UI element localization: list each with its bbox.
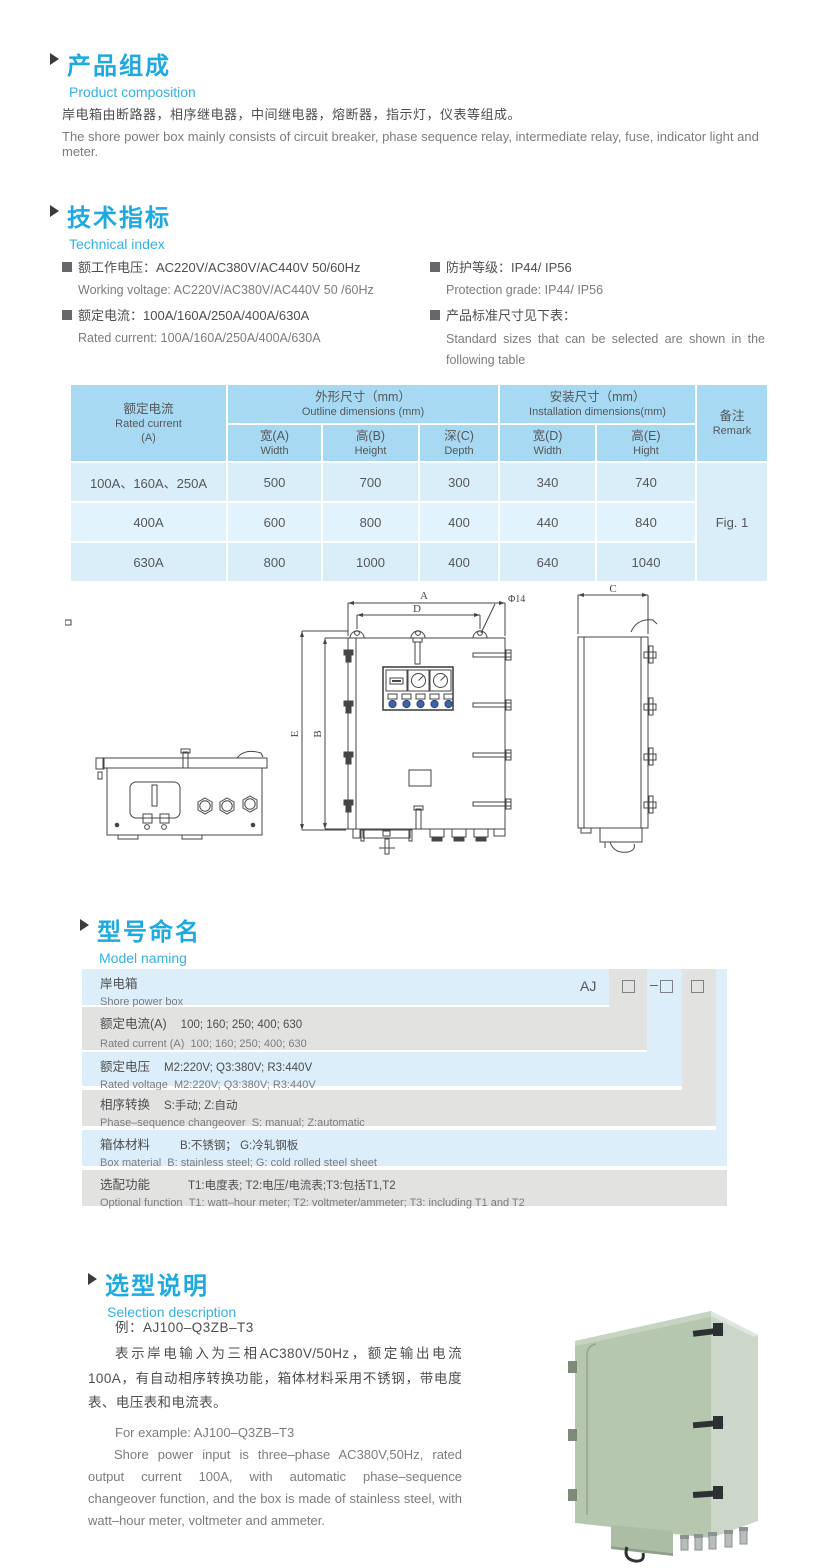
naming-row-rated-voltage: 额定电压M2:220V; Q3:380V; R3:440V Rated volt… bbox=[82, 1052, 682, 1086]
row-label-cn: 箱体材料 bbox=[100, 1134, 150, 1153]
dim-label-b: B bbox=[312, 730, 324, 737]
selection-example-en: For example: AJ100–Q3ZB–T3 bbox=[115, 1425, 462, 1440]
row-value-cn: B:不锈钢； G:冷轧钢板 bbox=[180, 1140, 298, 1152]
selection-body-cn: 表示岸电输入为三相AC380V/50Hz，额定输出电流100A，有自动相序转换功… bbox=[88, 1342, 462, 1416]
dim-label-e: E bbox=[289, 730, 301, 737]
cell-height: 800 bbox=[323, 503, 418, 541]
table-subheader-height-e: 高(E) Hight bbox=[597, 425, 695, 461]
naming-row-rated-current: 额定电流(A)100; 160; 250; 400; 630 Rated cur… bbox=[82, 1007, 647, 1050]
spec-en: Standard sizes that can be selected are … bbox=[446, 329, 765, 371]
spec-en: Rated current: 100A/160A/250A/400A/630A bbox=[78, 331, 422, 345]
subheader-en: Width bbox=[500, 444, 595, 458]
cell-depth: 300 bbox=[420, 463, 498, 501]
header-cn: 备注 bbox=[697, 408, 767, 424]
model-naming-diagram: 岸电箱 Shore power box 额定电流(A)100; 160; 250… bbox=[82, 969, 727, 1206]
section-model-naming-heading: 型号命名 Model naming bbox=[80, 912, 201, 966]
row-value-en: B: stainless steel; G: cold rolled steel… bbox=[167, 1157, 377, 1169]
subheader-en: Height bbox=[323, 444, 418, 458]
cell-inst-height: 840 bbox=[597, 503, 695, 541]
spec-bullet-protection-grade: 防护等级：IP44/ IP56 Protection grade: IP44/ … bbox=[430, 257, 765, 297]
table-header-rated-current: 额定电流 Rated current (A) bbox=[71, 385, 226, 461]
table-row: 630A 800 1000 400 640 1040 bbox=[71, 543, 767, 581]
row-value-en: S: manual; Z:automatic bbox=[252, 1117, 365, 1129]
heading-cn: 产品组成 bbox=[67, 46, 196, 81]
cell-remark: Fig. 1 bbox=[697, 463, 767, 581]
spec-bullet-working-voltage: 额工作电压：AC220V/AC380V/AC440V 50/60Hz Worki… bbox=[62, 257, 422, 297]
selection-example-cn: 例：AJ100–Q3ZB–T3 bbox=[115, 1316, 462, 1336]
spec-cn: 产品标准尺寸见下表： bbox=[446, 305, 576, 324]
spec-en: Protection grade: IP44/ IP56 bbox=[446, 283, 765, 297]
hole-diameter-label: Φ14 bbox=[508, 594, 525, 605]
subheader-cn: 宽(D) bbox=[500, 428, 595, 444]
row-label-cn: 额定电压 bbox=[100, 1056, 150, 1075]
cell-current: 630A bbox=[71, 543, 226, 581]
table-subheader-width-d: 宽(D) Width bbox=[500, 425, 595, 461]
subheader-cn: 高(B) bbox=[323, 428, 418, 444]
heading-en: Product composition bbox=[69, 84, 196, 100]
cell-depth: 400 bbox=[420, 503, 498, 541]
dim-label-c: C bbox=[609, 583, 616, 595]
bullet-square-icon bbox=[430, 310, 440, 320]
row-label-en: Optional function bbox=[100, 1197, 183, 1209]
naming-row-optional-function: 选配功能T1:电度表; T2:电压/电流表;T3:包括T1,T2 Optiona… bbox=[82, 1170, 727, 1206]
header-cn: 安装尺寸（mm） bbox=[500, 389, 695, 405]
table-header-installation-dimensions: 安装尺寸（mm） Installation dimensions(mm) bbox=[500, 385, 695, 423]
model-code-prefix: AJ bbox=[580, 978, 596, 994]
cell-height: 700 bbox=[323, 463, 418, 501]
subheader-cn: 深(C) bbox=[420, 428, 498, 444]
header-en: Remark bbox=[697, 424, 767, 438]
spec-bullet-standard-sizes: 产品标准尺寸见下表： Standard sizes that can be se… bbox=[430, 305, 765, 371]
row-value-en: 100; 160; 250; 400; 630 bbox=[191, 1038, 307, 1050]
row-label-cn: 岸电箱 bbox=[100, 973, 138, 992]
code-box bbox=[622, 980, 635, 993]
header-en: Installation dimensions(mm) bbox=[500, 405, 695, 419]
heading-en: Model naming bbox=[99, 950, 201, 966]
section-arrow-icon bbox=[88, 1273, 97, 1285]
heading-en: Technical index bbox=[69, 236, 171, 252]
row-label-cn: 相序转换 bbox=[100, 1094, 150, 1113]
table-subheader-height-b: 高(B) Height bbox=[323, 425, 418, 461]
table-subheader-width-a: 宽(A) Width bbox=[228, 425, 321, 461]
cell-height: 1000 bbox=[323, 543, 418, 581]
selection-text-block: 例：AJ100–Q3ZB–T3 表示岸电输入为三相AC380V/50Hz，额定输… bbox=[88, 1316, 462, 1532]
spec-en: Working voltage: AC220V/AC380V/AC440V 50… bbox=[78, 283, 422, 297]
table-subheader-depth-c: 深(C) Depth bbox=[420, 425, 498, 461]
composition-body-cn: 岸电箱由断路器，相序继电器，中间继电器，熔断器，指示灯，仪表等组成。 bbox=[62, 104, 762, 123]
subheader-cn: 高(E) bbox=[597, 428, 695, 444]
subheader-en: Depth bbox=[420, 444, 498, 458]
row-label-cn: 额定电流(A) bbox=[100, 1013, 167, 1032]
model-code-dash: – bbox=[650, 976, 658, 992]
dim-label-d: D bbox=[413, 603, 421, 615]
header-cn: 额定电流 bbox=[71, 401, 226, 417]
code-box bbox=[691, 980, 704, 993]
section-selection-description-heading: 选型说明 Selection description bbox=[88, 1266, 236, 1320]
bullet-square-icon bbox=[430, 262, 440, 272]
code-box bbox=[660, 980, 673, 993]
spec-cn: 防护等级：IP44/ IP56 bbox=[446, 257, 572, 276]
heading-cn: 选型说明 bbox=[105, 1266, 236, 1301]
table-header-remark: 备注 Remark bbox=[697, 385, 767, 461]
header-en: Outline dimensions (mm) bbox=[228, 405, 498, 419]
row-value-en: T1: watt–hour meter; T2: voltmeter/ammet… bbox=[189, 1197, 525, 1209]
cell-inst-width: 440 bbox=[500, 503, 595, 541]
row-value-cn: S:手动; Z:自动 bbox=[164, 1100, 237, 1112]
dim-label-a: A bbox=[420, 590, 428, 602]
subheader-cn: 宽(A) bbox=[228, 428, 321, 444]
spec-cn: 额工作电压：AC220V/AC380V/AC440V 50/60Hz bbox=[78, 257, 361, 276]
row-label-cn: 选配功能 bbox=[100, 1174, 150, 1193]
section-product-composition-heading: 产品组成 Product composition bbox=[50, 46, 196, 100]
naming-row-phase-sequence: 相序转换S:手动; Z:自动 Phase–sequence changeover… bbox=[82, 1090, 716, 1126]
technical-drawing: A D Φ14 E B C bbox=[65, 582, 765, 877]
row-value-cn: 100; 160; 250; 400; 630 bbox=[181, 1019, 303, 1031]
cell-inst-width: 640 bbox=[500, 543, 595, 581]
spec-bullet-rated-current: 额定电流：100A/160A/250A/400A/630A Rated curr… bbox=[62, 305, 422, 345]
table-header-outline-dimensions: 外形尺寸（mm） Outline dimensions (mm) bbox=[228, 385, 498, 423]
naming-row-box-material: 箱体材料B:不锈钢； G:冷轧钢板 Box material B: stainl… bbox=[82, 1130, 727, 1166]
heading-cn: 型号命名 bbox=[97, 912, 201, 947]
section-arrow-icon bbox=[80, 919, 89, 931]
dimension-table: 额定电流 Rated current (A) 外形尺寸（mm） Outline … bbox=[69, 383, 769, 583]
header-cn: 外形尺寸（mm） bbox=[228, 389, 498, 405]
naming-row-shore-power-box: 岸电箱 Shore power box bbox=[82, 969, 609, 1005]
spec-cn: 额定电流：100A/160A/250A/400A/630A bbox=[78, 305, 309, 324]
cell-width: 500 bbox=[228, 463, 321, 501]
cell-inst-height: 1040 bbox=[597, 543, 695, 581]
section-arrow-icon bbox=[50, 205, 59, 217]
section-arrow-icon bbox=[50, 53, 59, 65]
catalog-page: 产品组成 Product composition 岸电箱由断路器，相序继电器，中… bbox=[0, 0, 830, 1568]
row-value-cn: T1:电度表; T2:电压/电流表;T3:包括T1,T2 bbox=[188, 1180, 396, 1192]
cell-inst-height: 740 bbox=[597, 463, 695, 501]
table-row: 400A 600 800 400 440 840 bbox=[71, 503, 767, 541]
composition-body-en: The shore power box mainly consists of c… bbox=[62, 129, 782, 159]
header-unit: (A) bbox=[71, 431, 226, 445]
cell-inst-width: 340 bbox=[500, 463, 595, 501]
product-photo-shore-power-box bbox=[553, 1293, 821, 1565]
cell-width: 800 bbox=[228, 543, 321, 581]
row-label-en: Phase–sequence changeover bbox=[100, 1117, 246, 1129]
selection-body-en: Shore power input is three–phase AC380V,… bbox=[88, 1444, 462, 1532]
bullet-square-icon bbox=[62, 262, 72, 272]
cell-current: 400A bbox=[71, 503, 226, 541]
heading-cn: 技术指标 bbox=[67, 198, 171, 233]
subheader-en: Hight bbox=[597, 444, 695, 458]
cell-depth: 400 bbox=[420, 543, 498, 581]
table-row: 100A、160A、250A 500 700 300 340 740 Fig. … bbox=[71, 463, 767, 501]
bullet-square-icon bbox=[62, 310, 72, 320]
header-en: Rated current bbox=[71, 417, 226, 431]
cell-width: 600 bbox=[228, 503, 321, 541]
cell-current: 100A、160A、250A bbox=[71, 463, 226, 501]
row-label-en: Rated current (A) bbox=[100, 1038, 184, 1050]
row-label-en: Box material bbox=[100, 1157, 161, 1169]
row-value-cn: M2:220V; Q3:380V; R3:440V bbox=[164, 1062, 312, 1074]
section-technical-index-heading: 技术指标 Technical index bbox=[50, 198, 171, 252]
subheader-en: Width bbox=[228, 444, 321, 458]
